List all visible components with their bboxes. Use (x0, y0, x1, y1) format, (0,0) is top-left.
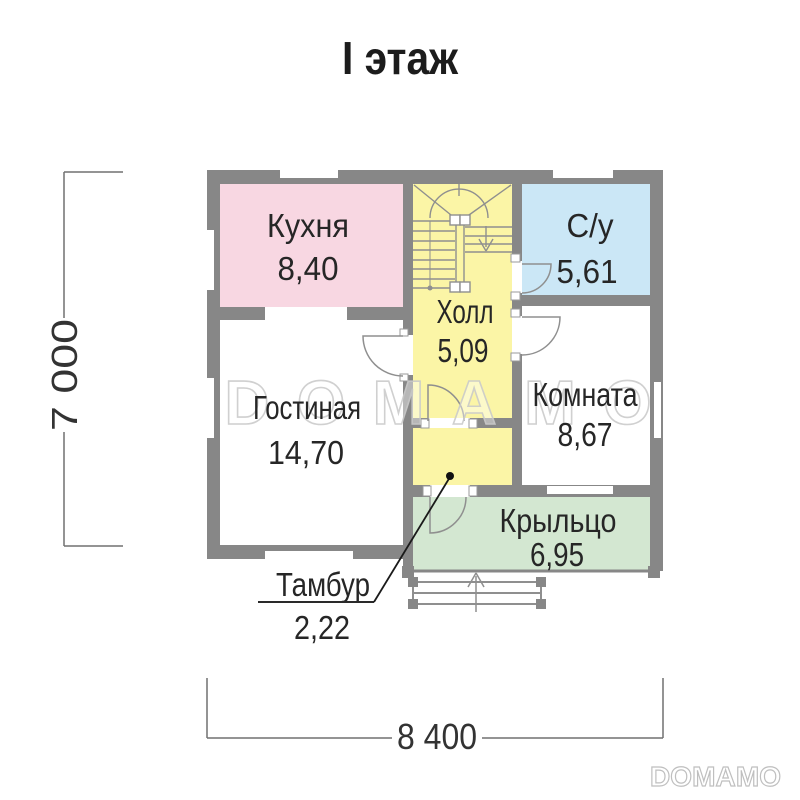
porch-door-opening (430, 485, 470, 497)
kitchen-room-fill (220, 184, 403, 307)
floor-plan-page: I этаж (0, 0, 800, 800)
kitchen-living-passage (265, 307, 347, 320)
window-kitchen-top (280, 170, 338, 178)
window-living-left (207, 378, 214, 438)
dimension-height-label: 7 000 (44, 319, 85, 431)
window-kitchen-left (207, 230, 214, 290)
bathroom-door-opening (512, 261, 522, 293)
kitchen-area: 8,40 (278, 250, 339, 287)
vestibule-leader-dot (446, 472, 454, 480)
hall-area: 5,09 (438, 332, 489, 369)
bedroom-label: Комната (533, 376, 639, 413)
bathroom-area: 5,61 (557, 253, 618, 290)
window-bedroom-porch (547, 486, 613, 494)
bedroom-area: 8,67 (558, 416, 613, 453)
floor-title: I этаж (342, 32, 458, 84)
porch-area: 6,95 (530, 536, 584, 573)
vestibule-area: 2,22 (294, 609, 350, 646)
wall-bathroom-bottom (522, 295, 650, 306)
entrance-steps (408, 573, 546, 612)
porch-label: Крыльцо (500, 502, 617, 539)
living-room-label: Гостиная (253, 389, 361, 426)
window-bedroom-right (654, 382, 661, 438)
bedroom-door-opening (512, 316, 522, 354)
wall-right (650, 170, 663, 571)
footer-logo-watermark: DOMAMO (650, 761, 781, 792)
living-room-area: 14,70 (268, 434, 344, 471)
window-living-bottom (265, 551, 353, 559)
dimension-width-label: 8 400 (397, 716, 477, 757)
kitchen-label: Кухня (267, 207, 349, 244)
window-bathroom-top (553, 170, 613, 178)
wall-left (207, 170, 220, 559)
vestibule-label: Тамбур (276, 566, 370, 603)
bathroom-label: С/у (567, 207, 614, 244)
floor-plan-drawing: I этаж (0, 0, 800, 800)
hall-label: Холл (437, 293, 494, 330)
